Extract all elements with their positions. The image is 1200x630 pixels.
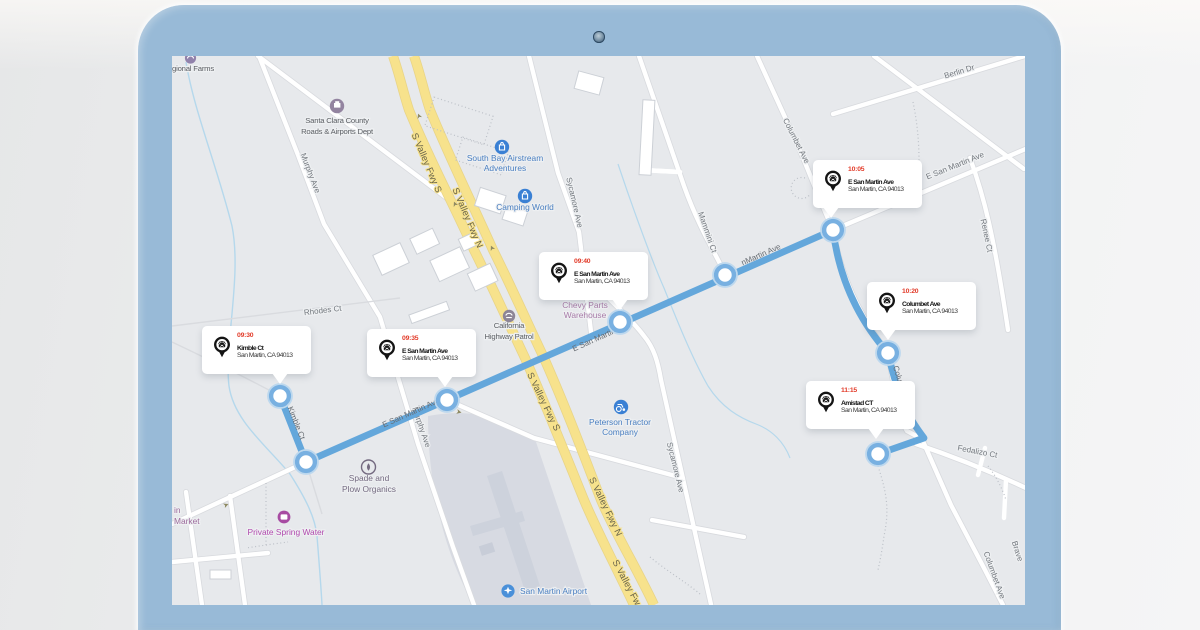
svg-text:Adventures: Adventures <box>484 163 526 173</box>
svg-text:Market: Market <box>174 516 200 526</box>
svg-text:Chevy Parts: Chevy Parts <box>562 300 608 310</box>
svg-text:in: in <box>174 505 181 515</box>
svg-text:San Martin Airport: San Martin Airport <box>520 586 588 596</box>
svg-text:South Bay Airstream: South Bay Airstream <box>467 153 543 163</box>
svg-text:Warehouse: Warehouse <box>564 310 607 320</box>
svg-text:Plow Organics: Plow Organics <box>342 484 396 494</box>
svg-text:Highway Patrol: Highway Patrol <box>485 332 534 341</box>
svg-text:gional Farms: gional Farms <box>172 64 214 73</box>
svg-text:Peterson Tractor: Peterson Tractor <box>589 417 651 427</box>
svg-text:California: California <box>494 321 525 330</box>
svg-text:Santa Clara County: Santa Clara County <box>305 116 369 125</box>
svg-text:Camping World: Camping World <box>496 202 554 212</box>
svg-text:Roads & Airports Dept: Roads & Airports Dept <box>301 127 374 136</box>
svg-text:Company: Company <box>602 427 639 437</box>
svg-text:Private Spring Water: Private Spring Water <box>248 527 325 537</box>
